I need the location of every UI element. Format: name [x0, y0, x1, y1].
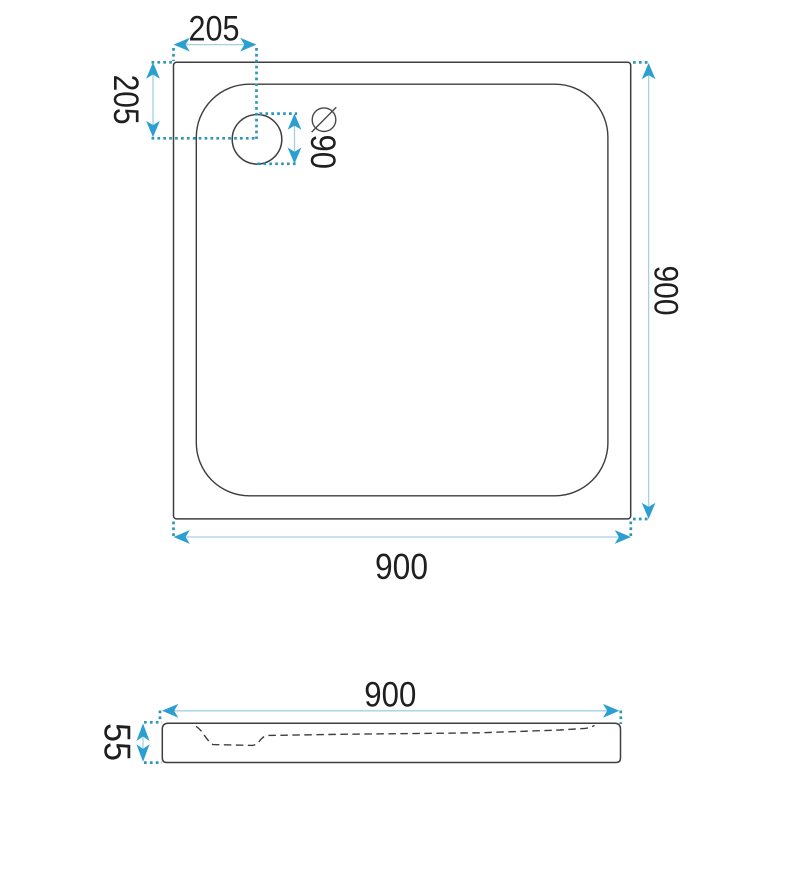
svg-text:90: 90 [303, 134, 342, 169]
svg-text:55: 55 [97, 723, 138, 761]
svg-text:900: 900 [647, 266, 685, 316]
svg-text:205: 205 [106, 75, 146, 125]
svg-text:900: 900 [364, 675, 416, 714]
svg-text:900: 900 [375, 546, 428, 587]
svg-text:205: 205 [189, 10, 240, 49]
